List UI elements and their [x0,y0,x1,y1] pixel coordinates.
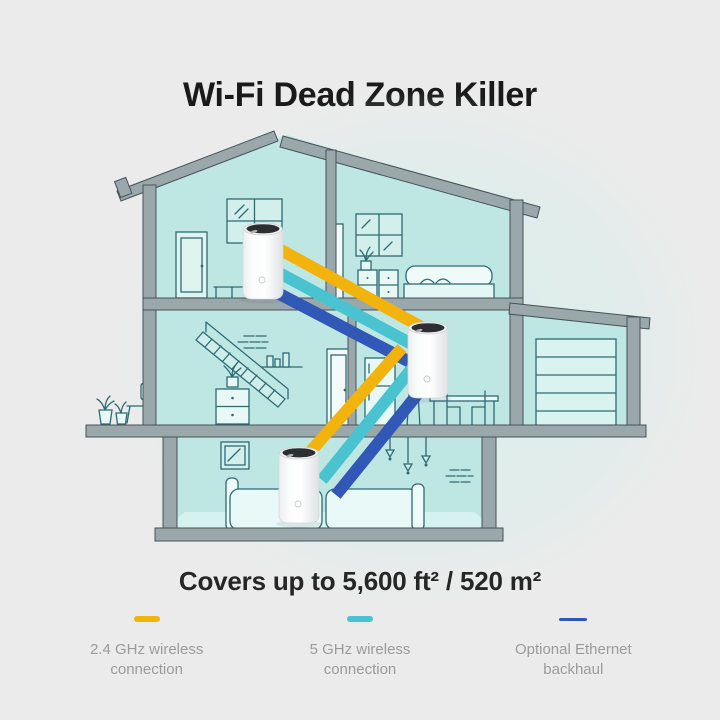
deco-unit-upstairs [240,223,286,304]
legend-swatch-2-4ghz [134,616,160,622]
roof-left-eave-cap [115,177,132,197]
legend-swatch-ethernet [559,618,587,621]
picture-frame [221,442,249,469]
slab-ground [155,528,503,541]
wall-living-left [163,437,177,530]
deco-unit-main-floor [405,322,451,403]
legend-item-2-4ghz: 2.4 GHz wireless connection [40,614,253,680]
legend-swatch-5ghz [347,616,373,622]
legend-label-2-4ghz: 2.4 GHz wireless connection [90,640,203,680]
legend: 2.4 GHz wireless connection 5 GHz wirele… [40,614,680,680]
wall-garage-right [627,317,640,428]
legend-label-ethernet-line2: backhaul [515,660,632,680]
legend-item-ethernet: Optional Ethernet backhaul [467,614,680,680]
legend-label-2-4ghz-line1: 2.4 GHz wireless [90,640,203,660]
legend-swatch-2-4ghz-wrap [134,614,160,624]
wall-living-right [482,437,496,530]
wall-left [143,185,156,437]
legend-label-5ghz-line1: 5 GHz wireless [310,640,411,660]
legend-label-ethernet-line1: Optional Ethernet [515,640,632,660]
legend-item-5ghz: 5 GHz wireless connection [253,614,466,680]
legend-label-2-4ghz-line2: connection [90,660,203,680]
legend-label-5ghz-line2: connection [310,660,411,680]
bedroom-window [356,214,402,256]
page: Wi-Fi Dead Zone Killer [0,0,720,720]
legend-label-ethernet: Optional Ethernet backhaul [515,640,632,680]
legend-swatch-5ghz-wrap [347,614,373,624]
legend-label-5ghz: 5 GHz wireless connection [310,640,411,680]
coverage-text: Covers up to 5,600 ft² / 520 m² [0,566,720,597]
deco-unit-living-room [276,447,322,528]
garage-door [536,339,616,427]
legend-swatch-ethernet-wrap [559,614,587,624]
house-illustration [0,0,720,720]
attic-door [176,232,207,298]
